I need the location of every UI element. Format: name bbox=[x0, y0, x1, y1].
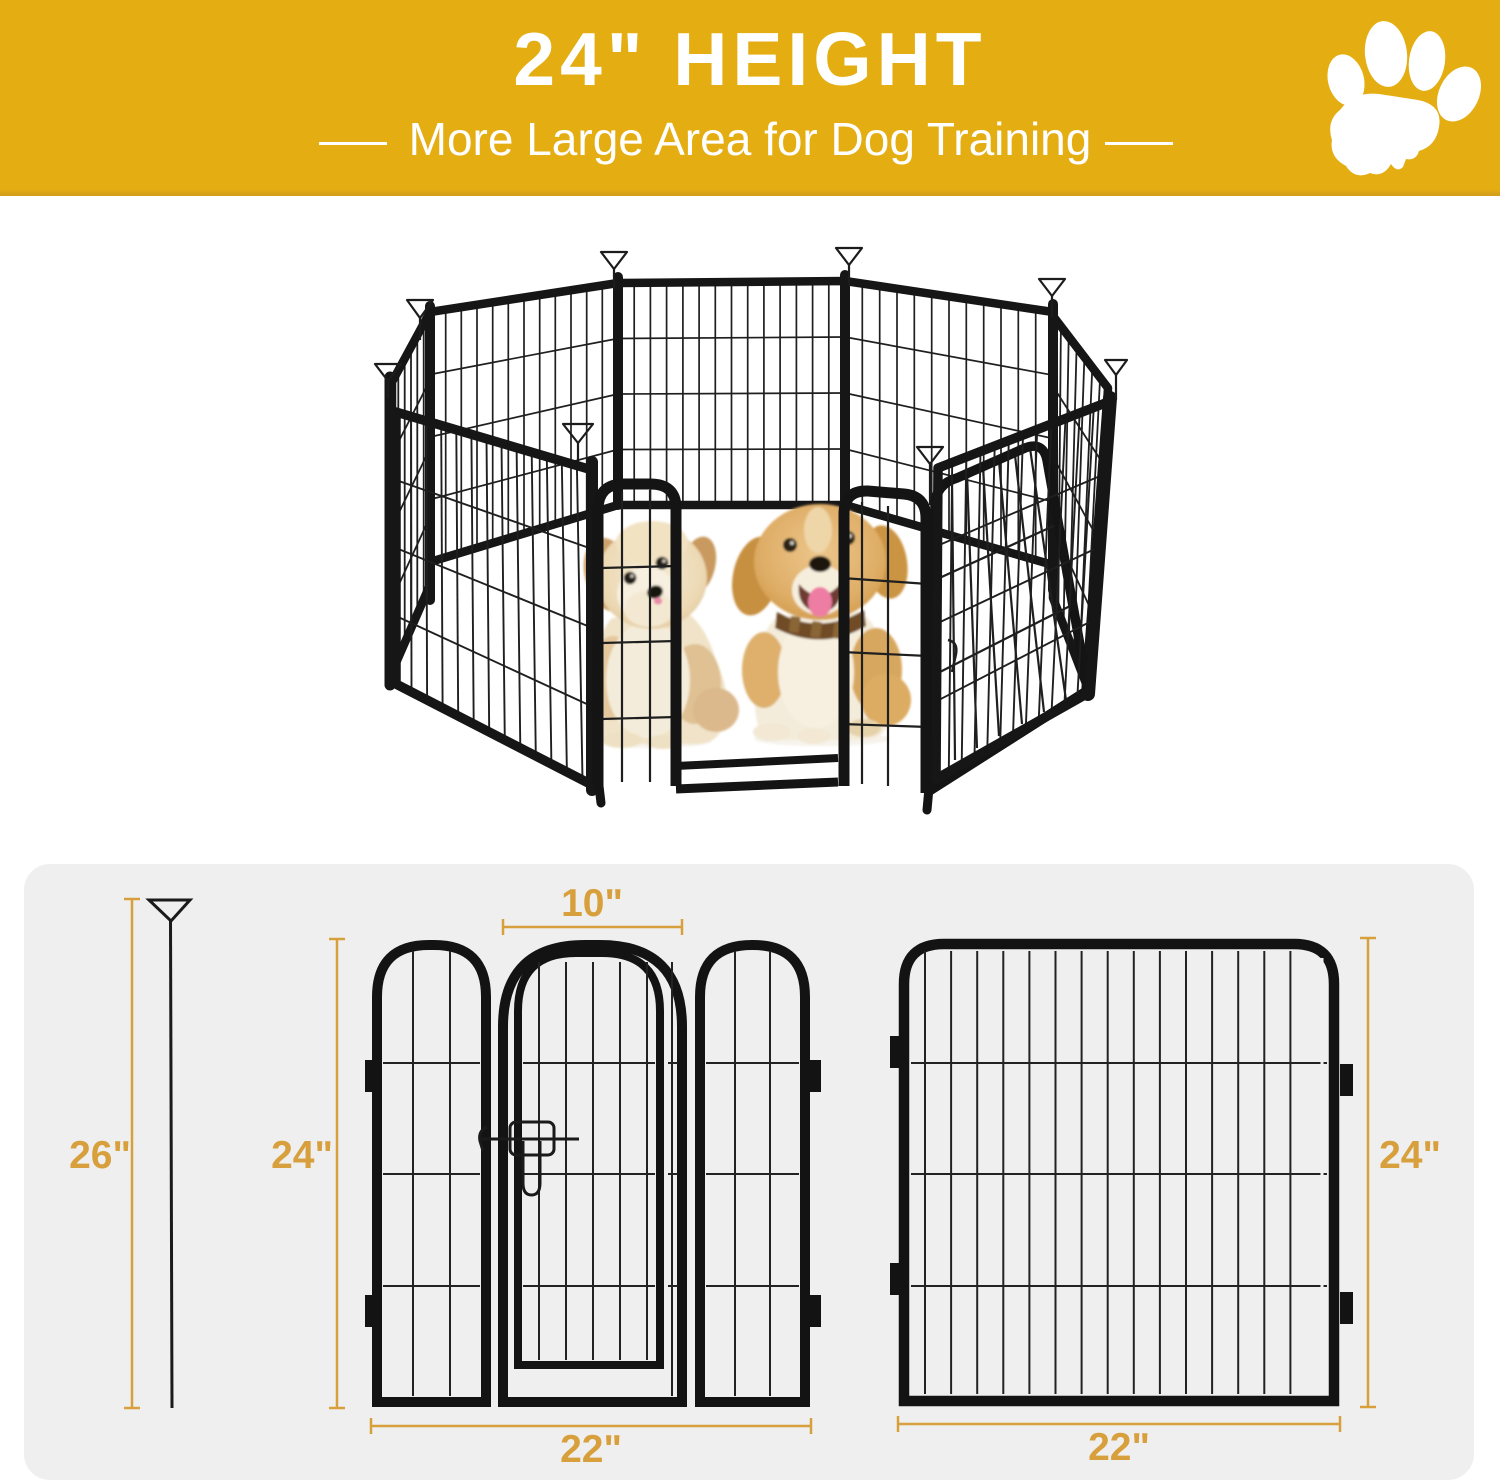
svg-text:24": 24" bbox=[1379, 1134, 1441, 1177]
svg-text:22": 22" bbox=[560, 1428, 622, 1471]
svg-text:24": 24" bbox=[271, 1134, 333, 1177]
svg-text:10": 10" bbox=[561, 882, 623, 925]
svg-text:22": 22" bbox=[1088, 1426, 1150, 1469]
svg-text:26": 26" bbox=[69, 1134, 131, 1177]
